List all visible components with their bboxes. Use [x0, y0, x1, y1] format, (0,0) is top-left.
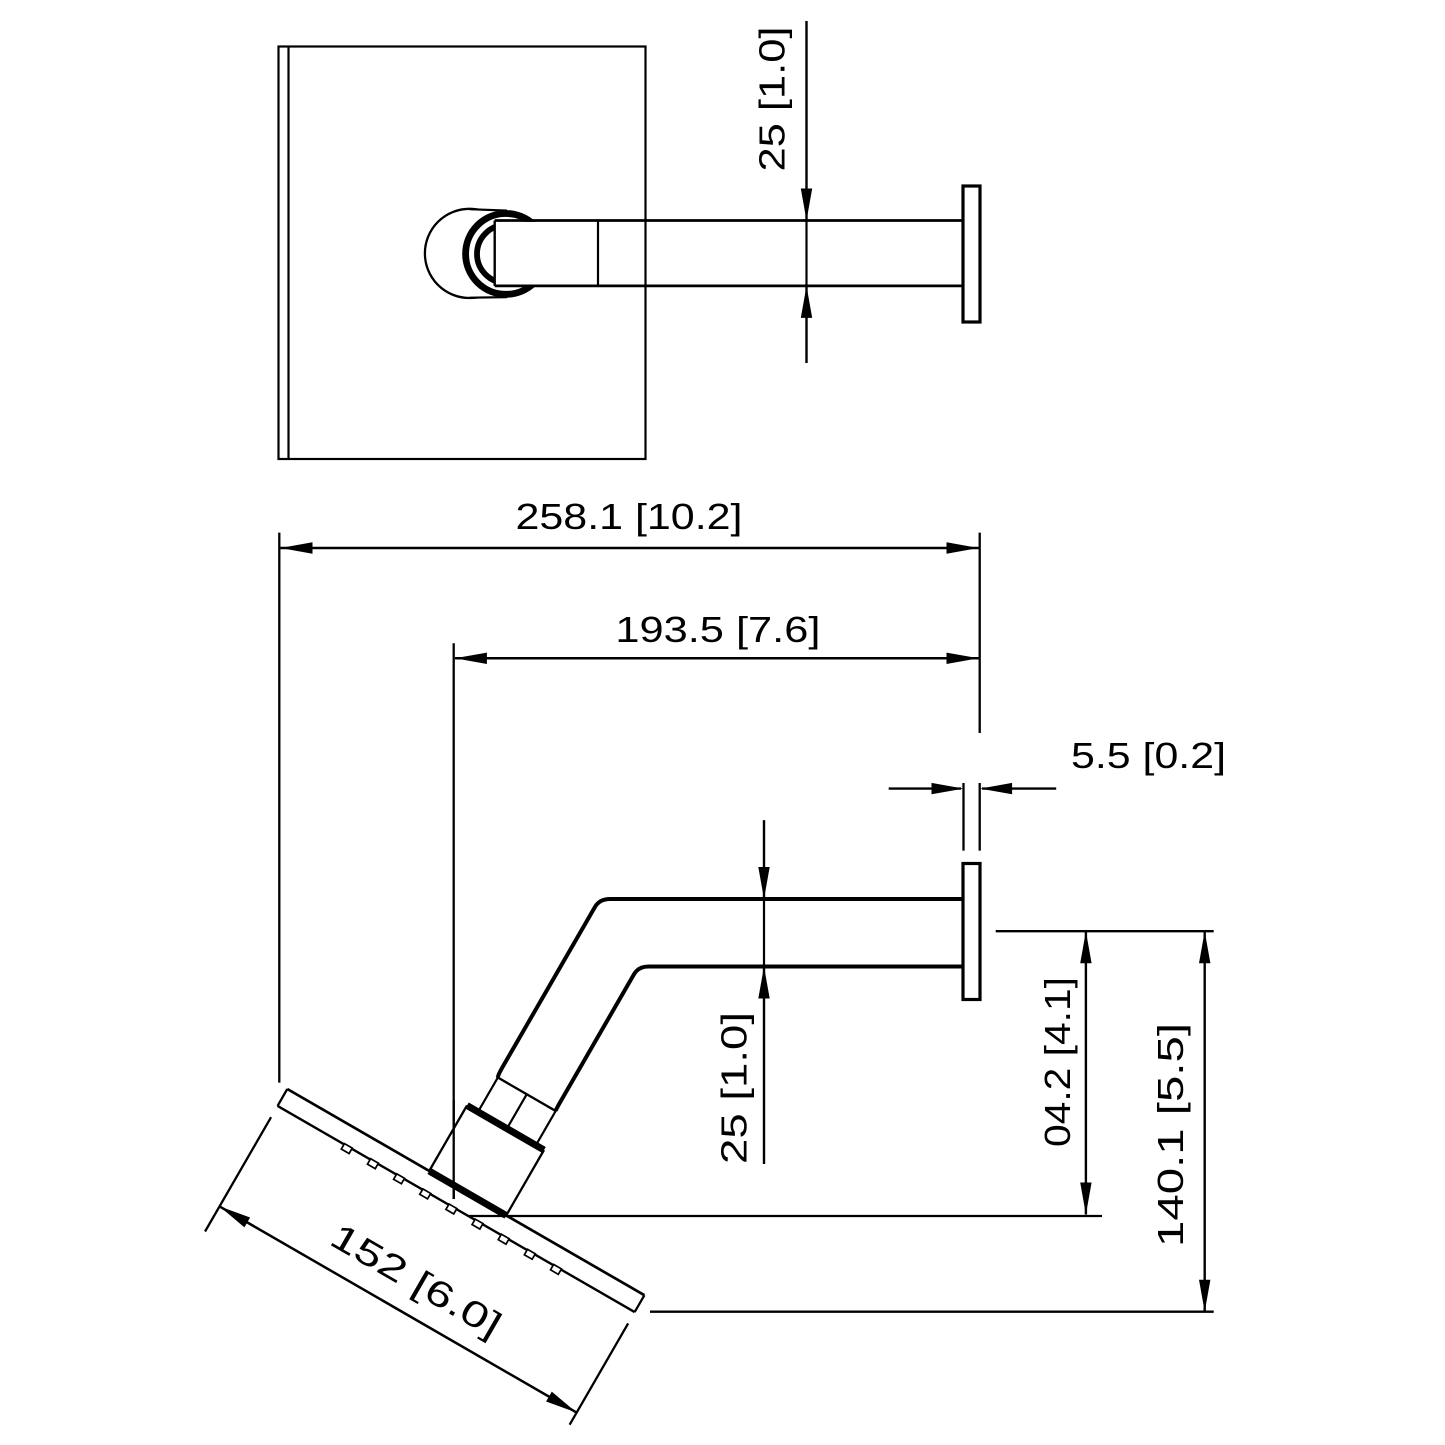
svg-text:193.5 [7.6]: 193.5 [7.6]	[615, 609, 820, 650]
svg-text:25 [1.0]: 25 [1.0]	[752, 27, 793, 172]
svg-text:04.2 [4.1]: 04.2 [4.1]	[1037, 977, 1078, 1147]
svg-text:5.5 [0.2]: 5.5 [0.2]	[1071, 735, 1226, 776]
svg-text:25 [1.0]: 25 [1.0]	[714, 1012, 755, 1164]
svg-text:140.1 [5.5]: 140.1 [5.5]	[1150, 1023, 1191, 1247]
svg-text:258.1 [10.2]: 258.1 [10.2]	[516, 496, 743, 537]
